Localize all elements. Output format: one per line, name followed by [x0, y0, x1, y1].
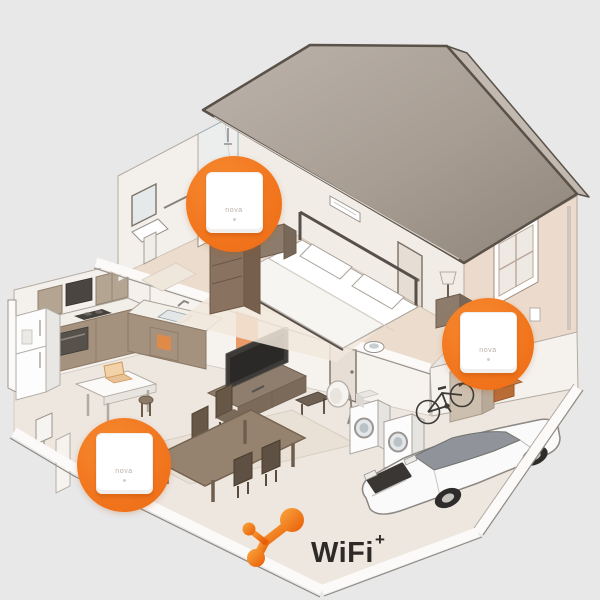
- logo-plus-superscript: +: [375, 531, 385, 548]
- nova-device: nova: [206, 172, 263, 233]
- robot-vacuum: [364, 342, 384, 353]
- nova-device: nova: [96, 433, 153, 494]
- outdoor-outlet: [530, 308, 540, 321]
- wifi-node-upstairs: nova: [186, 156, 282, 252]
- left-wall-cut-edge: [8, 300, 16, 392]
- wifi-house-illustration: nova nova nova: [0, 0, 600, 600]
- device-label: nova: [115, 468, 133, 475]
- nova-device: nova: [460, 312, 517, 373]
- network-nodes-icon: [237, 507, 309, 569]
- wifi-plus-logo: WiFi +: [237, 505, 385, 569]
- fridge: [16, 308, 60, 400]
- wifi-node-ground-floor: nova: [77, 418, 171, 512]
- wifi-node-garage: nova: [442, 298, 534, 390]
- device-led-icon: [123, 479, 126, 482]
- device-led-icon: [487, 358, 490, 361]
- device-label: nova: [225, 207, 243, 214]
- lamp-shade: [440, 272, 456, 284]
- logo-brand-text: WiFi: [311, 539, 374, 568]
- device-led-icon: [233, 218, 236, 221]
- device-label: nova: [479, 347, 497, 354]
